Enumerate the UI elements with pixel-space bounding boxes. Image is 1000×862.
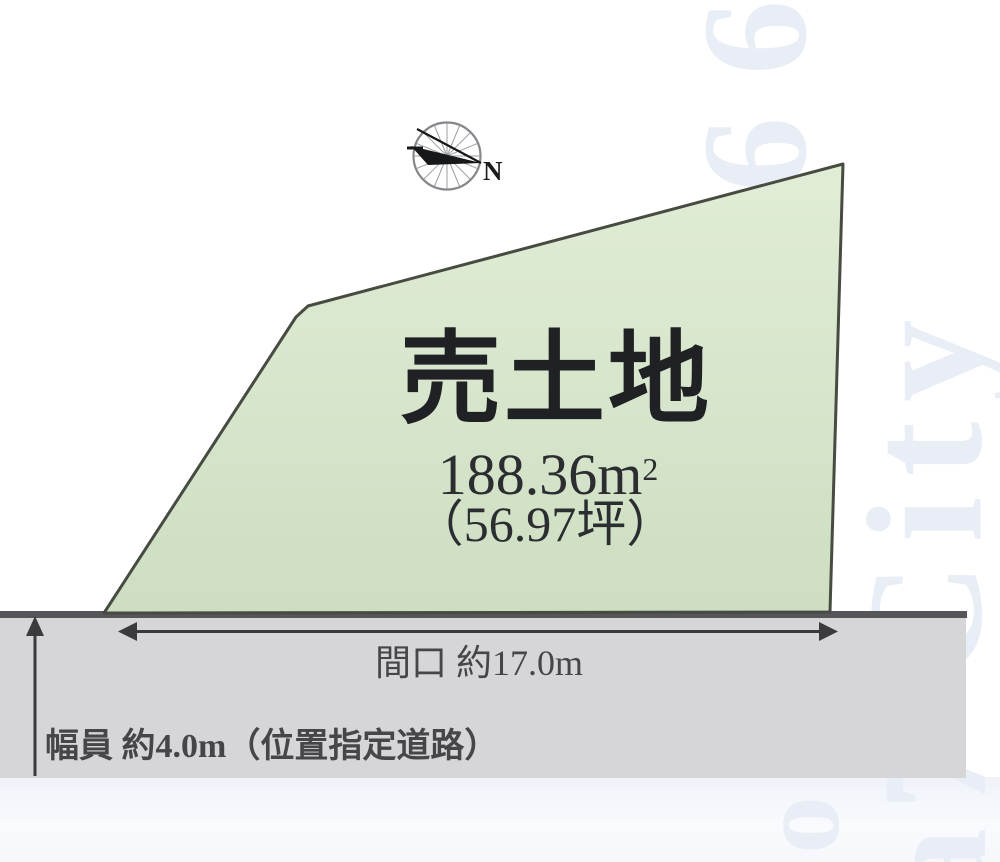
- parcel-area-sqm-exponent: 2: [642, 452, 658, 487]
- land-plot-diagram: 66 City o a7: [0, 0, 1000, 862]
- north-label: N: [483, 158, 503, 185]
- frontage-label: 間口 約17.0m: [375, 645, 583, 681]
- road-width-label: 幅員 約4.0m（位置指定道路）: [45, 730, 498, 764]
- parcel-title: 売土地: [400, 330, 712, 431]
- parcel-area-tsubo: （56.97坪）: [414, 499, 677, 549]
- compass-rose-icon: [407, 123, 481, 190]
